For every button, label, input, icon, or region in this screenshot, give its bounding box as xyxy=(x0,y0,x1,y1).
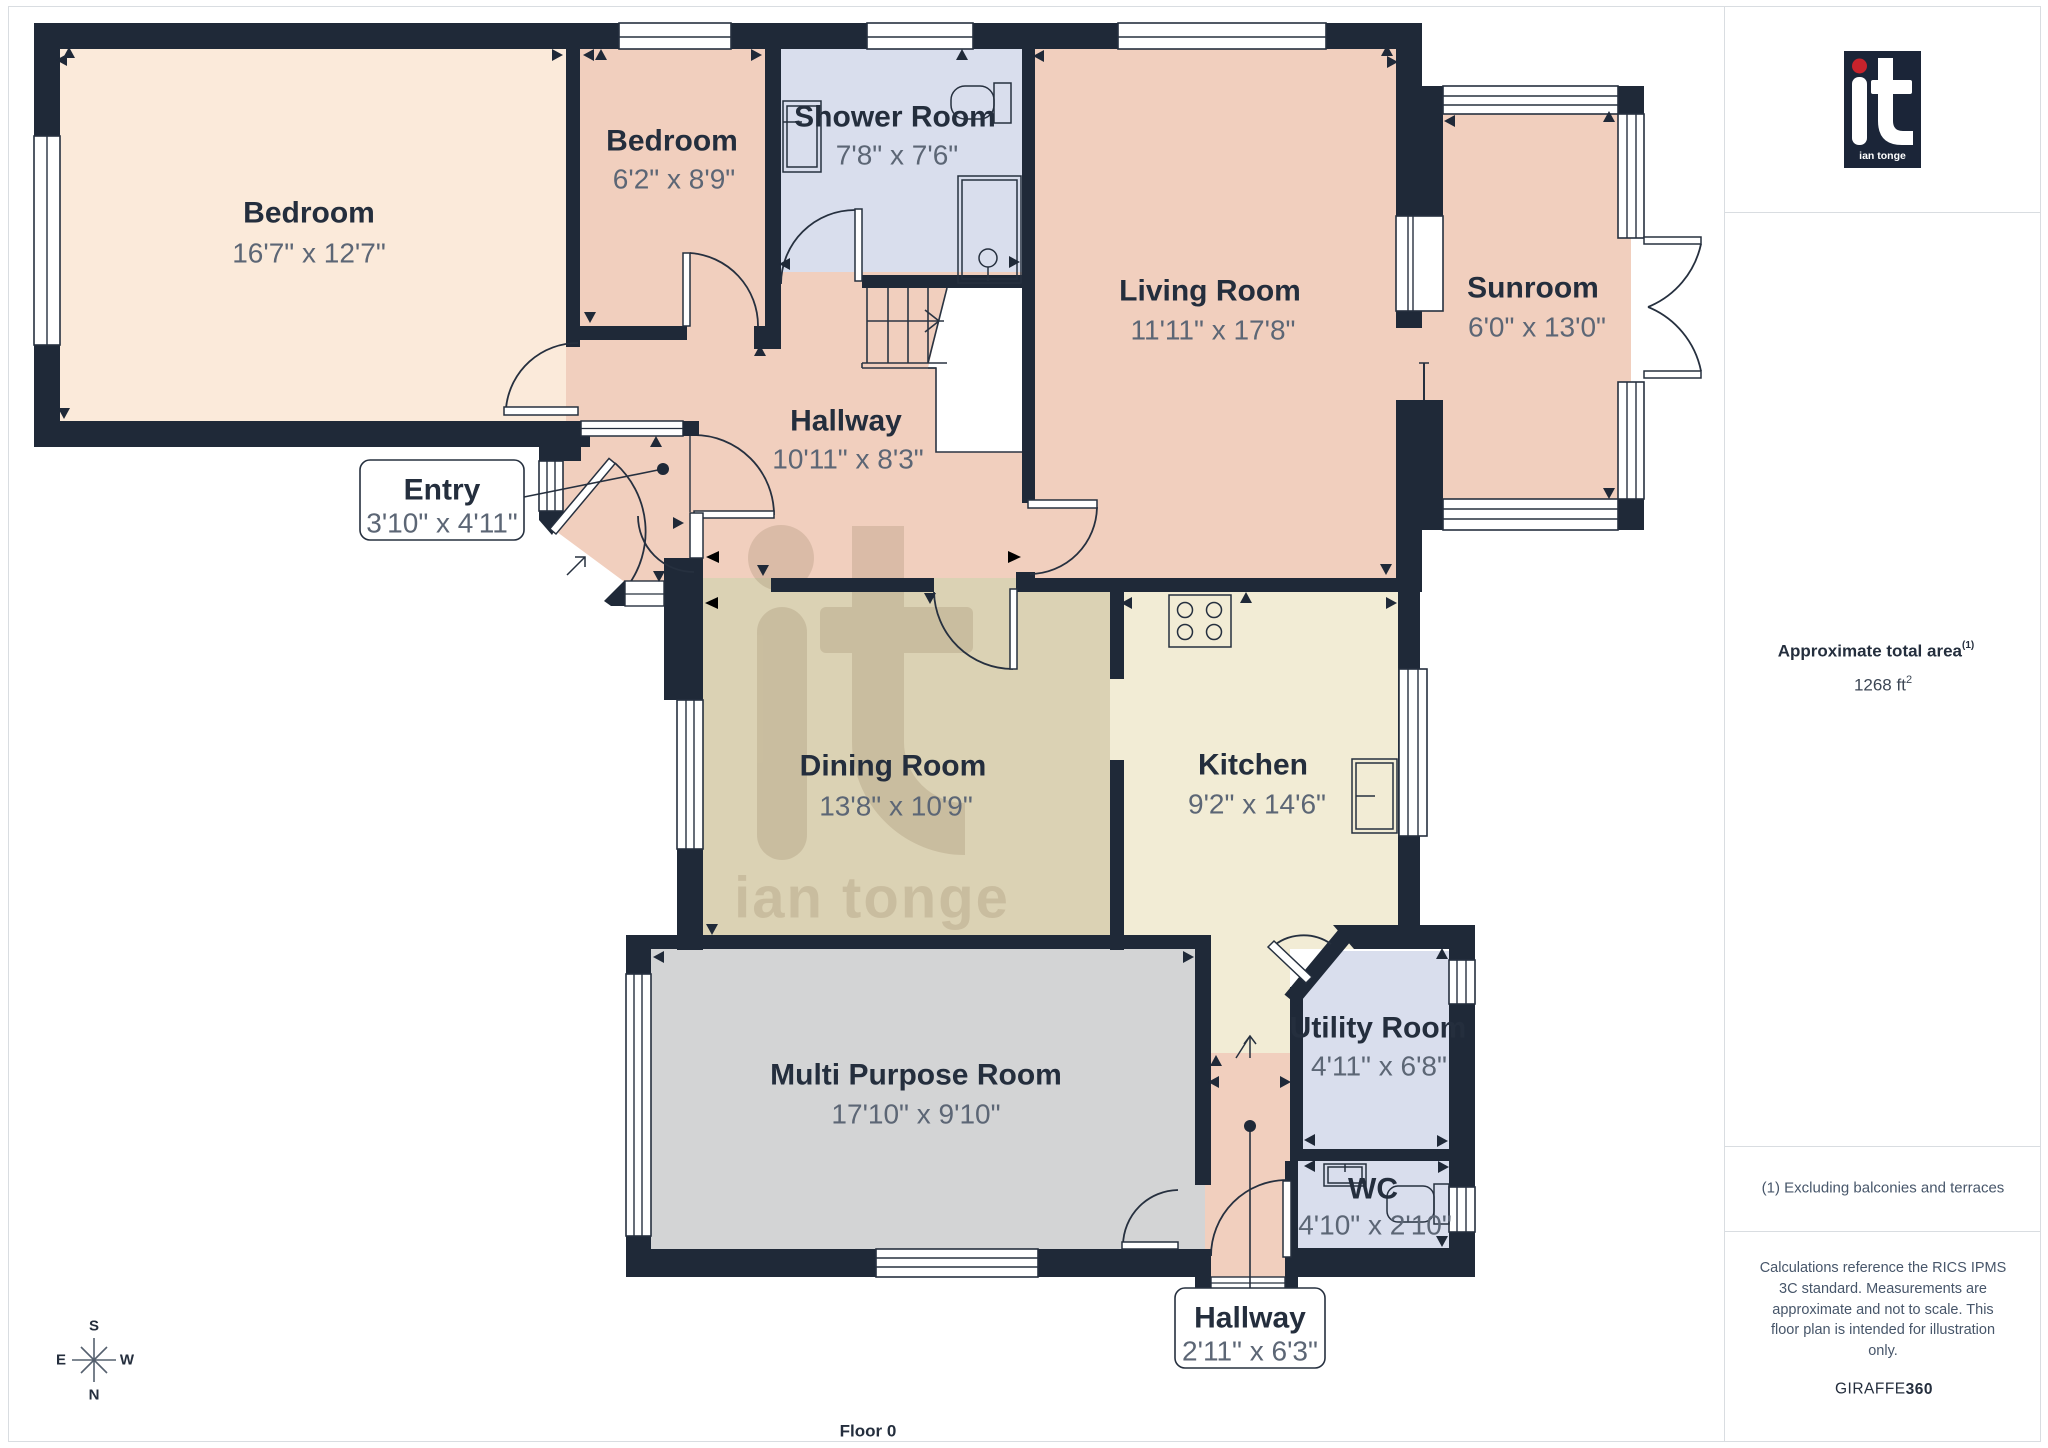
svg-text:4'11" x 6'8": 4'11" x 6'8" xyxy=(1311,1051,1447,1082)
svg-text:3'10" x 4'11": 3'10" x 4'11" xyxy=(366,508,517,539)
svg-text:W: W xyxy=(120,1352,135,1369)
svg-text:11'11" x 17'8": 11'11" x 17'8" xyxy=(1131,315,1296,346)
svg-text:WC: WC xyxy=(1348,1173,1398,1206)
svg-text:Living Room: Living Room xyxy=(1119,275,1301,308)
svg-text:10'11" x 8'3": 10'11" x 8'3" xyxy=(772,444,923,475)
svg-text:ian tonge: ian tonge xyxy=(734,866,1010,931)
svg-text:2'11" x 6'3": 2'11" x 6'3" xyxy=(1182,1336,1318,1367)
svg-text:approximate and not to scale.: approximate and not to scale. This xyxy=(1772,1302,1993,1318)
svg-text:17'10" x 9'10": 17'10" x 9'10" xyxy=(831,1099,1000,1130)
svg-text:Approximate total area(1): Approximate total area(1) xyxy=(1778,640,1974,661)
svg-text:3C standard. Measurements are: 3C standard. Measurements are xyxy=(1779,1281,1987,1297)
svg-text:Sunroom: Sunroom xyxy=(1467,272,1599,305)
svg-text:E: E xyxy=(56,1352,66,1369)
svg-text:floor plan is intended for ill: floor plan is intended for illustration xyxy=(1771,1322,1995,1338)
svg-text:13'8" x 10'9": 13'8" x 10'9" xyxy=(819,791,973,822)
svg-text:7'8" x 7'6": 7'8" x 7'6" xyxy=(836,140,958,171)
svg-text:Hallway: Hallway xyxy=(1194,1302,1306,1335)
svg-text:(1) Excluding balconies and te: (1) Excluding balconies and terraces xyxy=(1762,1180,2005,1197)
svg-text:only.: only. xyxy=(1868,1343,1898,1359)
svg-text:6'2" x 8'9": 6'2" x 8'9" xyxy=(613,164,735,195)
svg-text:9'2" x 14'6": 9'2" x 14'6" xyxy=(1188,789,1326,820)
svg-text:N: N xyxy=(89,1387,100,1404)
svg-text:S: S xyxy=(89,1318,99,1335)
svg-text:4'10" x 2'10": 4'10" x 2'10" xyxy=(1298,1210,1452,1241)
svg-text:Hallway: Hallway xyxy=(790,405,902,438)
svg-text:Shower Room: Shower Room xyxy=(794,101,996,134)
svg-text:1268 ft2: 1268 ft2 xyxy=(1854,674,1912,695)
svg-text:Utility Room: Utility Room xyxy=(1290,1012,1467,1045)
svg-text:ian tonge: ian tonge xyxy=(1859,150,1906,162)
svg-text:Calculations reference the RIC: Calculations reference the RICS IPMS xyxy=(1760,1260,2007,1276)
svg-text:6'0" x 13'0": 6'0" x 13'0" xyxy=(1468,312,1606,343)
svg-text:Entry: Entry xyxy=(404,474,481,507)
svg-text:Multi Purpose Room: Multi Purpose Room xyxy=(770,1059,1062,1092)
svg-text:Floor 0: Floor 0 xyxy=(840,1422,897,1441)
svg-text:Bedroom: Bedroom xyxy=(606,125,738,158)
svg-text:16'7" x 12'7": 16'7" x 12'7" xyxy=(232,238,386,269)
svg-text:Kitchen: Kitchen xyxy=(1198,749,1308,782)
svg-text:Dining Room: Dining Room xyxy=(800,750,987,783)
svg-text:Bedroom: Bedroom xyxy=(243,197,375,230)
svg-text:GIRAFFE360: GIRAFFE360 xyxy=(1835,1381,1933,1398)
